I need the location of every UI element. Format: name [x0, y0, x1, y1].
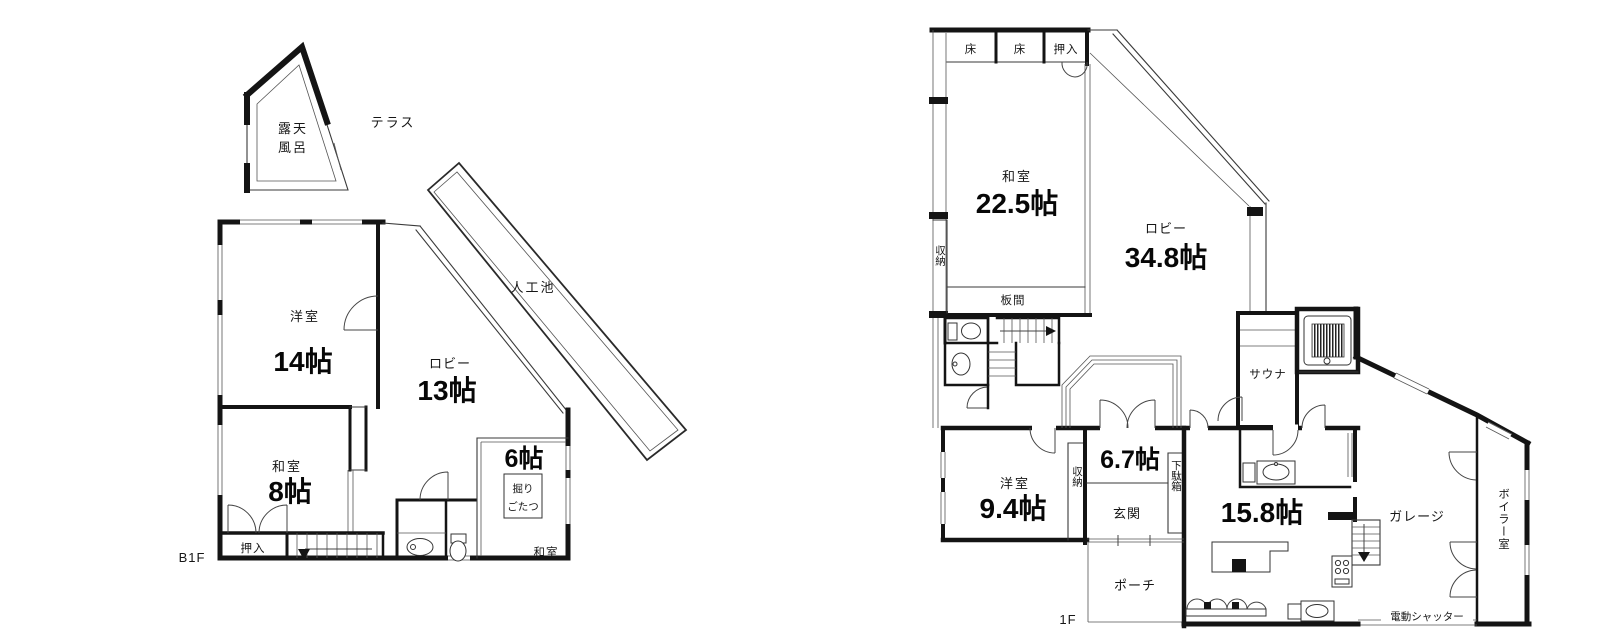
- f1-western-room-size: 9.4帖: [980, 493, 1047, 524]
- b1f-western-room-size: 14帖: [273, 346, 332, 377]
- f1-stove: [1332, 556, 1352, 587]
- f1-shoe-cabinet-label: 下駄箱: [1170, 460, 1182, 492]
- b1f-lobby-name: ロビー: [429, 356, 471, 371]
- f1-entrance-label: 玄関: [1113, 506, 1141, 521]
- b1f-washbasin: [407, 539, 433, 556]
- f1-western-room-name: 洋室: [1000, 476, 1030, 491]
- f1-storage-mid-label: 収納: [1071, 466, 1083, 488]
- f1-lobby-size: 34.8帖: [1125, 242, 1208, 273]
- b1f-western-room-name: 洋室: [290, 309, 320, 324]
- f1-shutter-label: 電動シャッター: [1390, 610, 1464, 623]
- b1f-kotatsu-label-2: ごたつ: [507, 500, 539, 513]
- b1f-openairbath-label-2: 風呂: [278, 140, 308, 155]
- b1f-floor-label: B1F: [179, 550, 206, 565]
- f1-wood-floor-label: 板間: [1001, 293, 1026, 307]
- f1-alcove1-label: 床: [965, 42, 978, 56]
- f1-hall-size: 6.7帖: [1100, 446, 1160, 474]
- b1f-closet-label: 押入: [241, 541, 266, 555]
- b1f-room6-type: 和室: [534, 545, 559, 559]
- f1-porch-label: ポーチ: [1114, 578, 1156, 593]
- f1-japanese-room-name: 和室: [1002, 169, 1032, 184]
- b1f-japanese-room-name: 和室: [272, 459, 302, 474]
- f1-ldk-size: 15.8帖: [1221, 497, 1304, 528]
- b1f-openairbath-label-1: 露天: [278, 121, 308, 136]
- floorplan-svg: 露天 風呂 テラス 人工池 洋室 14帖 ロビー 13帖 和室 8帖 押入 B1…: [0, 0, 1600, 643]
- b1f-japanese-room-size: 8帖: [268, 476, 312, 507]
- f1-sink: [1288, 601, 1334, 621]
- f1-sauna-label: サウナ: [1249, 368, 1287, 381]
- floorplan-image: 露天 風呂 テラス 人工池 洋室 14帖 ロビー 13帖 和室 8帖 押入 B1…: [0, 0, 1600, 643]
- b1f-room6-size: 6帖: [505, 445, 544, 473]
- f1-storage-left-label: 収納: [934, 245, 946, 267]
- f1-lobby-name: ロビー: [1145, 221, 1187, 236]
- b1f-lobby-size: 13帖: [417, 375, 476, 406]
- f1-alcove2-label: 床: [1014, 42, 1027, 56]
- f1-boiler-room-label: ボイラー室: [1497, 488, 1510, 551]
- f1-bath: [1297, 309, 1358, 372]
- f1-closet-top-label: 押入: [1054, 42, 1079, 56]
- b1f-pond-label: 人工池: [510, 280, 555, 295]
- f1-japanese-room-size: 22.5帖: [976, 188, 1059, 219]
- b1f-toilet: [450, 534, 466, 561]
- b1f-terrace-label: テラス: [371, 115, 416, 130]
- f1-floor-label: 1F: [1059, 612, 1076, 627]
- b1f-kotatsu-label-1: 掘り: [513, 482, 534, 495]
- f1-garage-label: ガレージ: [1389, 509, 1445, 524]
